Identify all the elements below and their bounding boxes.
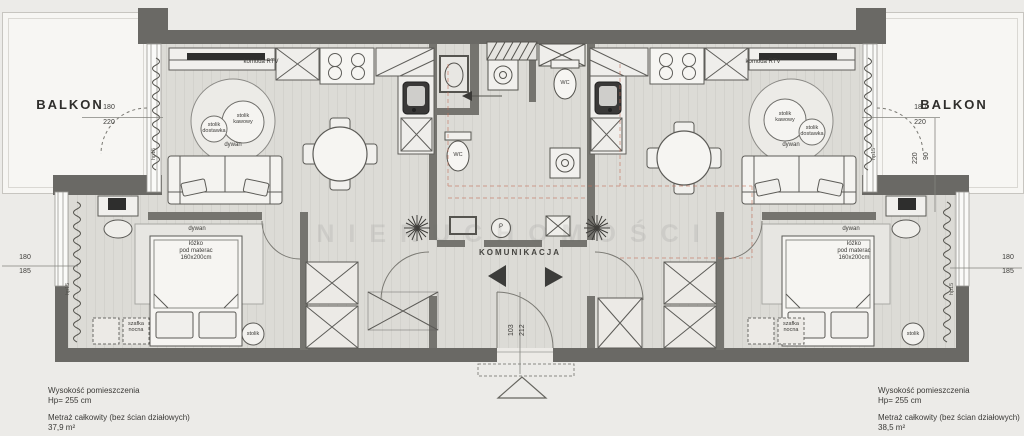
sofa-left (168, 156, 282, 204)
washer-label: P (491, 224, 511, 231)
dim-entry-a: 103 (508, 324, 516, 336)
sill-label-right-bottom: hp15 (949, 283, 955, 295)
dim-left-top-b: 220 (94, 119, 124, 127)
small-table-left-label: stolik (238, 331, 268, 337)
dim-right-side-b: 90 (923, 152, 931, 160)
notes-left-area: Metraż całkowity (bez ścian działowych) … (48, 413, 278, 434)
rug-left-label: dywan (203, 142, 263, 149)
dim-right-side-a: 220 (912, 152, 920, 164)
notes-right-height: Wysokość pomieszczenia Hp= 255 cm (878, 386, 1024, 407)
nightstand-left-label: szafka nocna (120, 321, 152, 333)
rug-right-label: dywan (761, 142, 821, 149)
dim-right-top-b: 220 (905, 119, 935, 127)
corridor-label: KOMUNIKACJA (455, 248, 585, 257)
sofa-right (742, 156, 856, 204)
bed-left-label: łóżko pod materac 160x200cm (161, 241, 231, 262)
wc-right-label: WC (556, 80, 574, 86)
tv-unit-right-label: komoda RTV (728, 59, 798, 66)
bed-right-label: łóżko pod materac 160x200cm (819, 241, 889, 262)
floor-plan: NIERUCHOMOŚCI BALKON BALKON KOMUNIKACJA … (0, 0, 1024, 436)
desk-left (98, 196, 138, 238)
tv-unit-left-label: komoda RTV (226, 59, 296, 66)
dim-right-top-a: 180 (905, 104, 935, 112)
bedroom-rug-right-label: dywan (826, 226, 876, 233)
small-table-right-label: stolik (898, 331, 928, 337)
dining-table-left (303, 118, 377, 190)
notes-right-area: Metraż całkowity (bez ścian działowych) … (878, 413, 1024, 434)
watermark: NIERUCHOMOŚCI (290, 220, 740, 249)
dim-right-bottom-b: 185 (993, 268, 1023, 276)
notes-left: Wysokość pomieszczenia Hp= 255 cm Metraż… (48, 386, 278, 434)
dim-left-bottom-a: 180 (10, 254, 40, 262)
notes-right: Wysokość pomieszczenia Hp= 255 cm Metraż… (878, 386, 1024, 434)
side-table-left-label: stolik dostawka (199, 122, 229, 134)
dim-right-bottom-a: 180 (993, 254, 1023, 262)
dim-left-top-a: 180 (94, 104, 124, 112)
dim-left-bottom-b: 185 (10, 268, 40, 276)
side-table-right-label: stolik dostawka (797, 125, 827, 137)
bedroom-rug-left-label: dywan (172, 226, 222, 233)
dining-table-right (647, 122, 721, 194)
desk-right (886, 196, 926, 238)
coffee-table-right-label: stolik kawowy (760, 111, 810, 123)
nightstand-right-label: szafka nocna (775, 321, 807, 333)
sill-label-right-top: hp15 (871, 148, 877, 160)
dim-entry-b: 212 (519, 324, 527, 336)
sill-label-left-top: hp15 (151, 148, 157, 160)
wc-left-label: WC (449, 152, 467, 158)
notes-left-height: Wysokość pomieszczenia Hp= 255 cm (48, 386, 278, 407)
sill-label-left-bottom: hp15 (65, 283, 71, 295)
entry-markers (478, 364, 574, 398)
